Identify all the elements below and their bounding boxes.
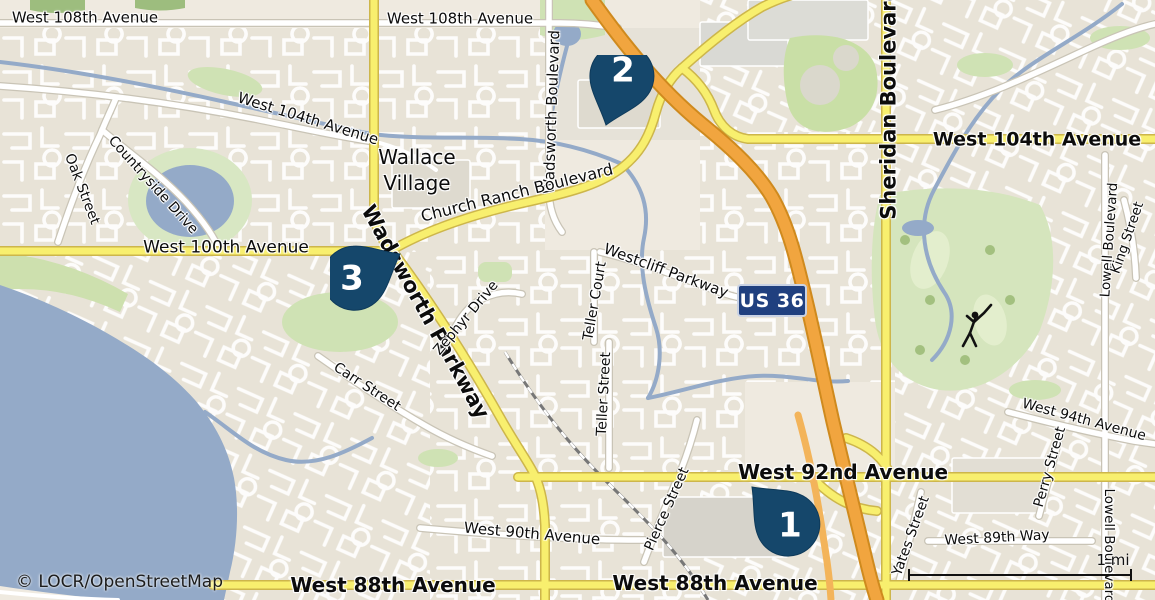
scale-bar bbox=[908, 569, 1132, 581]
scale-label: 1 mi bbox=[1096, 551, 1129, 569]
route-shield-us36: US 36 bbox=[737, 284, 807, 317]
scale-bar-line bbox=[908, 574, 1132, 576]
scale-bar-tick-right bbox=[1130, 569, 1132, 581]
map-attribution: © LOCR/OpenStreetMap bbox=[16, 572, 223, 592]
road-w108 bbox=[0, 23, 618, 28]
marker-pin-2[interactable] bbox=[536, 55, 676, 195]
marker-pin-1[interactable] bbox=[682, 417, 822, 557]
marker-pin-3[interactable] bbox=[330, 184, 470, 324]
map-viewport[interactable]: West 108th Avenue West 108th Avenue West… bbox=[0, 0, 1155, 600]
scale-bar-tick-left bbox=[908, 569, 910, 581]
route-shield-label: US 36 bbox=[740, 290, 805, 312]
